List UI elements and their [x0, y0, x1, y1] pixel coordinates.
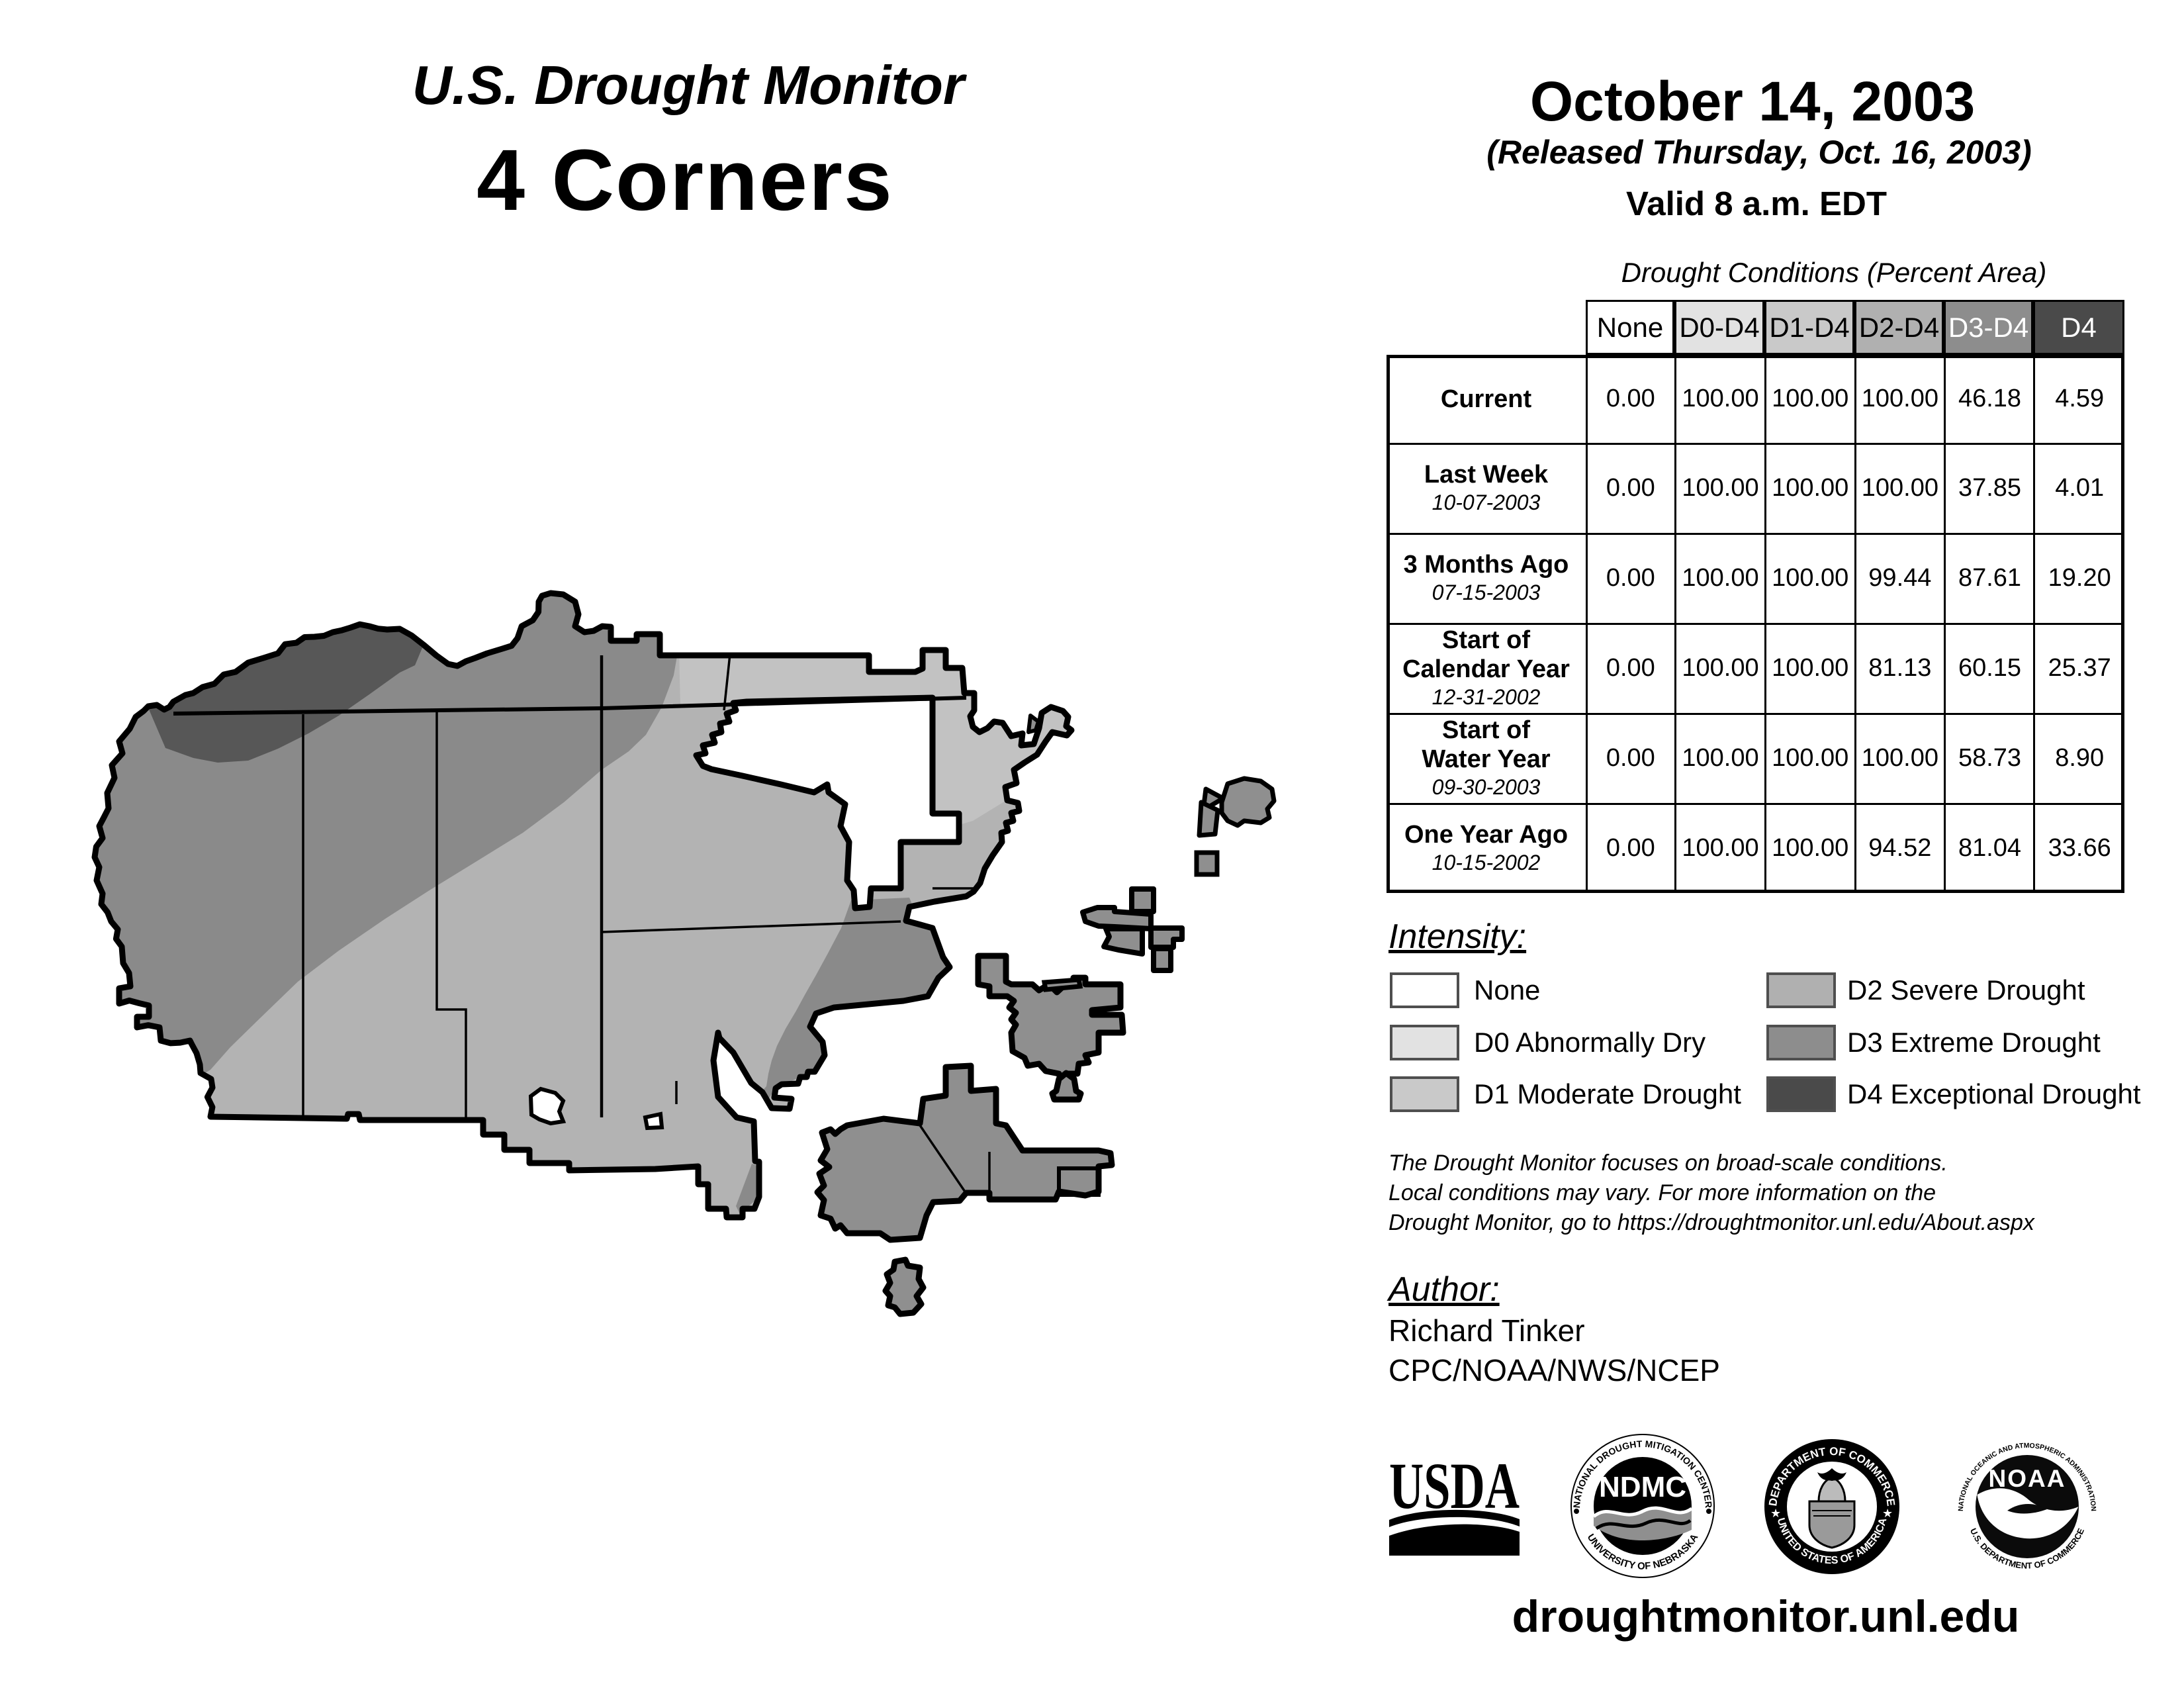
- svg-text:NDMC: NDMC: [1599, 1471, 1686, 1503]
- svg-text:NOAA: NOAA: [1989, 1465, 2066, 1492]
- svg-text:★: ★: [1770, 1507, 1781, 1520]
- svg-text:★: ★: [1882, 1507, 1893, 1520]
